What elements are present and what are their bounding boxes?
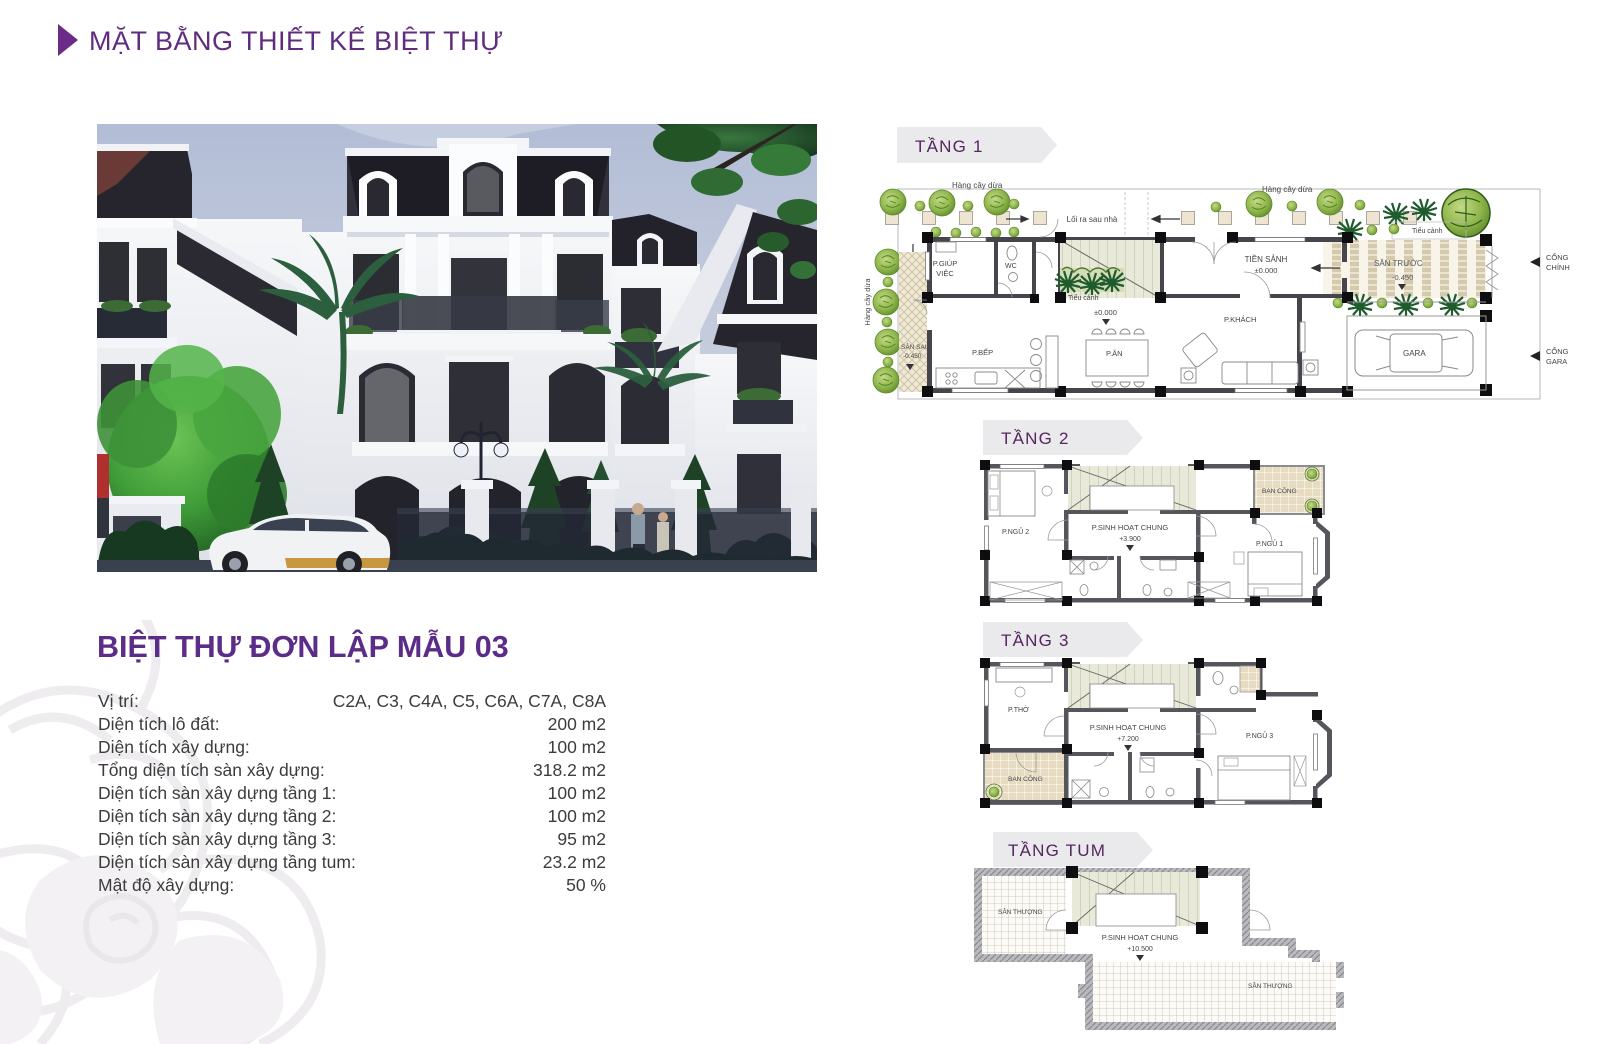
- svg-text:P.NGỦ 3: P.NGỦ 3: [1246, 731, 1273, 740]
- svg-text:P.ĂN: P.ĂN: [1106, 349, 1123, 358]
- svg-text:±0.000: ±0.000: [1094, 308, 1117, 317]
- svg-text:TIỀN SẢNH: TIỀN SẢNH: [1245, 254, 1288, 264]
- svg-text:P.NGỦ 2: P.NGỦ 2: [1002, 527, 1029, 536]
- svg-text:TẦNG 2: TẦNG 2: [1001, 429, 1070, 448]
- svg-text:+3.900: +3.900: [1119, 536, 1141, 543]
- svg-text:P.SINH HOẠT CHUNG: P.SINH HOẠT CHUNG: [1102, 933, 1179, 942]
- svg-text:Tiểu cảnh: Tiểu cảnh: [1068, 294, 1099, 302]
- svg-text:CỔNG: CỔNG: [1546, 253, 1569, 262]
- svg-text:P.KHÁCH: P.KHÁCH: [1224, 315, 1256, 324]
- svg-text:CỔNG: CỔNG: [1546, 347, 1569, 356]
- svg-text:SÂN THƯỢNG: SÂN THƯỢNG: [998, 907, 1043, 916]
- svg-text:±0.000: ±0.000: [1255, 266, 1278, 275]
- svg-text:Lối ra sau nhà: Lối ra sau nhà: [1067, 215, 1118, 224]
- svg-text:P.SINH HOẠT CHUNG: P.SINH HOẠT CHUNG: [1092, 523, 1169, 532]
- svg-text:P.SINH HOẠT CHUNG: P.SINH HOẠT CHUNG: [1090, 723, 1167, 732]
- svg-text:GARA: GARA: [1403, 349, 1426, 358]
- svg-text:SÂN SAU: SÂN SAU: [901, 342, 930, 351]
- svg-text:P.NGỦ 1: P.NGỦ 1: [1256, 539, 1283, 548]
- svg-text:SÂN THƯỢNG: SÂN THƯỢNG: [1248, 981, 1293, 990]
- svg-text:TẦNG TUM: TẦNG TUM: [1008, 841, 1106, 860]
- svg-text:+10.500: +10.500: [1127, 946, 1153, 953]
- svg-text:Hàng cây dừa: Hàng cây dừa: [952, 181, 1003, 190]
- svg-text:Hàng cây dừa: Hàng cây dừa: [863, 278, 872, 326]
- svg-text:Tiểu cảnh: Tiểu cảnh: [1412, 227, 1443, 235]
- svg-text:VIỆC: VIỆC: [936, 269, 954, 278]
- svg-text:TẦNG 1: TẦNG 1: [915, 137, 984, 156]
- svg-text:TẦNG 3: TẦNG 3: [1001, 631, 1070, 650]
- svg-text:BAN CÔNG: BAN CÔNG: [1262, 486, 1297, 495]
- svg-text:P.GIÚP: P.GIÚP: [933, 259, 957, 268]
- svg-text:Hàng cây dừa: Hàng cây dừa: [1262, 185, 1313, 194]
- svg-text:BAN CÔNG: BAN CÔNG: [1008, 774, 1043, 783]
- svg-text:P.BẾP: P.BẾP: [972, 347, 993, 357]
- svg-text:SÂN TRƯỚC: SÂN TRƯỚC: [1374, 259, 1423, 268]
- svg-text:+7.200: +7.200: [1117, 736, 1139, 743]
- svg-text:CHÍNH: CHÍNH: [1546, 263, 1570, 272]
- svg-text:-0.450: -0.450: [903, 353, 922, 360]
- svg-text:GARA: GARA: [1546, 357, 1567, 366]
- svg-text:-0.450: -0.450: [1392, 273, 1413, 282]
- svg-text:P.THỜ: P.THỜ: [1008, 705, 1029, 714]
- svg-text:WC: WC: [1005, 263, 1017, 270]
